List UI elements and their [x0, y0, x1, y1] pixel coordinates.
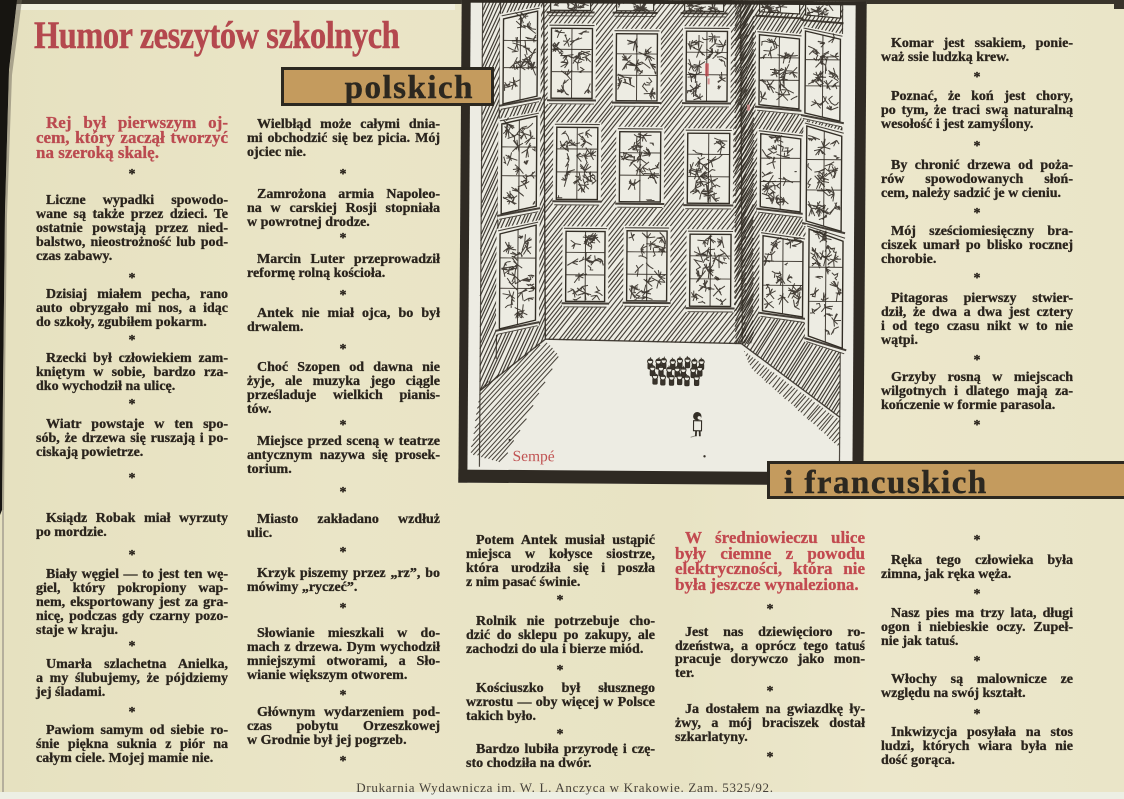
svg-text:Sempé: Sempé [512, 448, 554, 465]
